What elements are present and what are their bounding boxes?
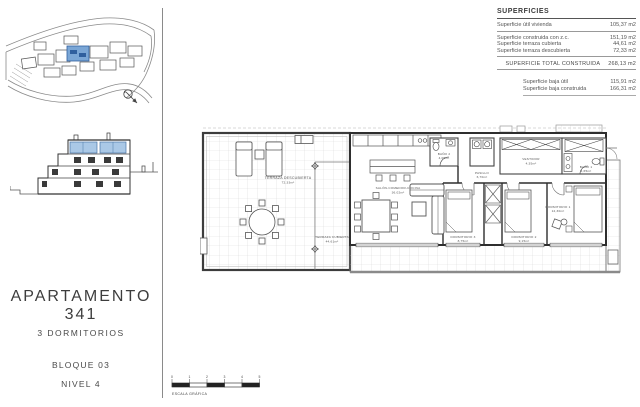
room-area-terraza-cubierta: 44,61m² (326, 240, 339, 244)
terrace-strip-bottom (350, 245, 606, 272)
superficies-row: Superficie baja construida 166,31 m2 (523, 86, 636, 93)
panel-divider-line (162, 8, 163, 398)
room-label-terraza-cubierta: TERRAZA CUBIERTA (315, 235, 349, 239)
site-plan-map (4, 6, 159, 114)
bed-icon (505, 190, 531, 232)
scale-bar-segments (172, 383, 260, 387)
scale-tick-label: 5 (259, 375, 261, 379)
drawing-sheet: APARTAMENTO 341 3 DORMITORIOS BLOQUE 03 … (0, 0, 640, 407)
room-area-bano2: 4,05m² (439, 156, 450, 160)
superficies-row: Superficie útil vivienda 105,37 m2 (497, 22, 636, 32)
room-area-dorm2: 9,15m² (519, 239, 530, 243)
room-label-vestidor: VESTIDOR (522, 157, 540, 161)
scale-bar: 0 1 2 3 4 5 ESCALA GRÁFICA (168, 374, 268, 402)
superficies-row: Superficie construida con z.c. 151,19 m2 (497, 35, 636, 42)
superficies-total-row: SUPERFICIE TOTAL CONSTRUIDA 268,13 m2 (497, 59, 636, 70)
room-area-dorm3: 8,75m² (458, 239, 469, 243)
room-area-dorm1: 12,30m² (552, 209, 565, 213)
room-area-salon: 36,02m² (392, 191, 405, 195)
coffee-table-icon (412, 202, 426, 216)
apartment-title: APARTAMENTO 341 (0, 288, 162, 324)
superficies-row: Superficie baja útil 115,91 m2 (523, 79, 636, 86)
superficies-total-label: SUPERFICIE TOTAL CONSTRUIDA (505, 61, 600, 67)
side-table-icon (255, 150, 264, 159)
scale-tick-label: 0 (171, 375, 173, 379)
window-bands (356, 243, 602, 247)
terrace-wall-detail (200, 238, 207, 254)
title-block: APARTAMENTO 341 3 DORMITORIOS BLOQUE 03 … (0, 288, 162, 389)
superficies-group: Superficie construida con z.c. 151,19 m2… (497, 35, 636, 58)
superficies-row-label: Superficie terraza cubierta (497, 41, 561, 48)
bed-icon (446, 190, 472, 232)
building-section (10, 130, 160, 215)
scale-tick-label: 2 (206, 375, 208, 379)
superficies-title: SUPERFICIES (497, 8, 636, 19)
room-area-vestidor: 4,35m² (526, 162, 537, 166)
room-area-pasillo: 6,70m² (477, 175, 488, 179)
superficies-row-label: Superficie terraza descubierta (497, 48, 570, 55)
sun-lounger-icon (236, 142, 252, 176)
superficies-row-label: Superficie baja construida (523, 86, 586, 93)
superficies-row-value: 44,61 m2 (613, 41, 636, 48)
scale-tick-label: 1 (189, 375, 191, 379)
scale-bar-caption: ESCALA GRÁFICA (172, 392, 207, 396)
superficies-row-value: 166,31 m2 (610, 86, 636, 93)
superficies-row-label: Superficie construida con z.c. (497, 35, 569, 42)
superficies-row: Superficie terraza cubierta 44,61 m2 (497, 41, 636, 48)
vestidor (500, 138, 562, 174)
block-label: BLOQUE 03 (0, 360, 162, 370)
floor-plan: TERRAZA DESCUBIERTA 72,33m² TERRAZA CUBI… (200, 122, 640, 297)
site-highlighted-building (67, 46, 89, 61)
scale-tick-label: 4 (241, 375, 243, 379)
superficies-row-label: Superficie baja útil (523, 79, 568, 86)
superficies-row-value: 151,19 m2 (610, 35, 636, 42)
superficies-total-value: 268,13 m2 (608, 61, 636, 67)
room-label-terraza-descubierta: TERRAZA DESCUBIERTA (265, 176, 312, 180)
apartment-subtitle: 3 DORMITORIOS (0, 328, 162, 338)
superficies-row-value: 72,33 m2 (613, 48, 636, 55)
laundry-closet (470, 138, 494, 166)
room-label-salon: SALÓN-COMEDOR-COCINA (376, 185, 421, 190)
scale-tick-label: 3 (224, 375, 226, 379)
superficies-extra-group: Superficie baja útil 115,91 m2 Superfici… (523, 79, 636, 95)
rooftop-elements (500, 125, 602, 132)
superficies-panel: SUPERFICIES Superficie útil vivienda 105… (497, 8, 636, 96)
sun-lounger-icon (266, 142, 282, 176)
superficies-row-value: 115,91 m2 (610, 79, 636, 86)
bbq-counter-icon (295, 136, 313, 144)
room-area-terraza-descubierta: 72,33m² (282, 181, 295, 185)
superficies-row: Superficie terraza descubierta 72,33 m2 (497, 48, 636, 55)
superficies-row-label: Superficie útil vivienda (497, 22, 552, 29)
superficies-row-value: 105,37 m2 (610, 22, 636, 29)
room-area-bano1: 4,65m² (581, 169, 592, 173)
level-label: NIVEL 4 (0, 379, 162, 389)
kitchen-counter-icon (353, 135, 441, 146)
kitchen-island-icon (370, 160, 415, 181)
terrace-right-detail (608, 250, 618, 264)
